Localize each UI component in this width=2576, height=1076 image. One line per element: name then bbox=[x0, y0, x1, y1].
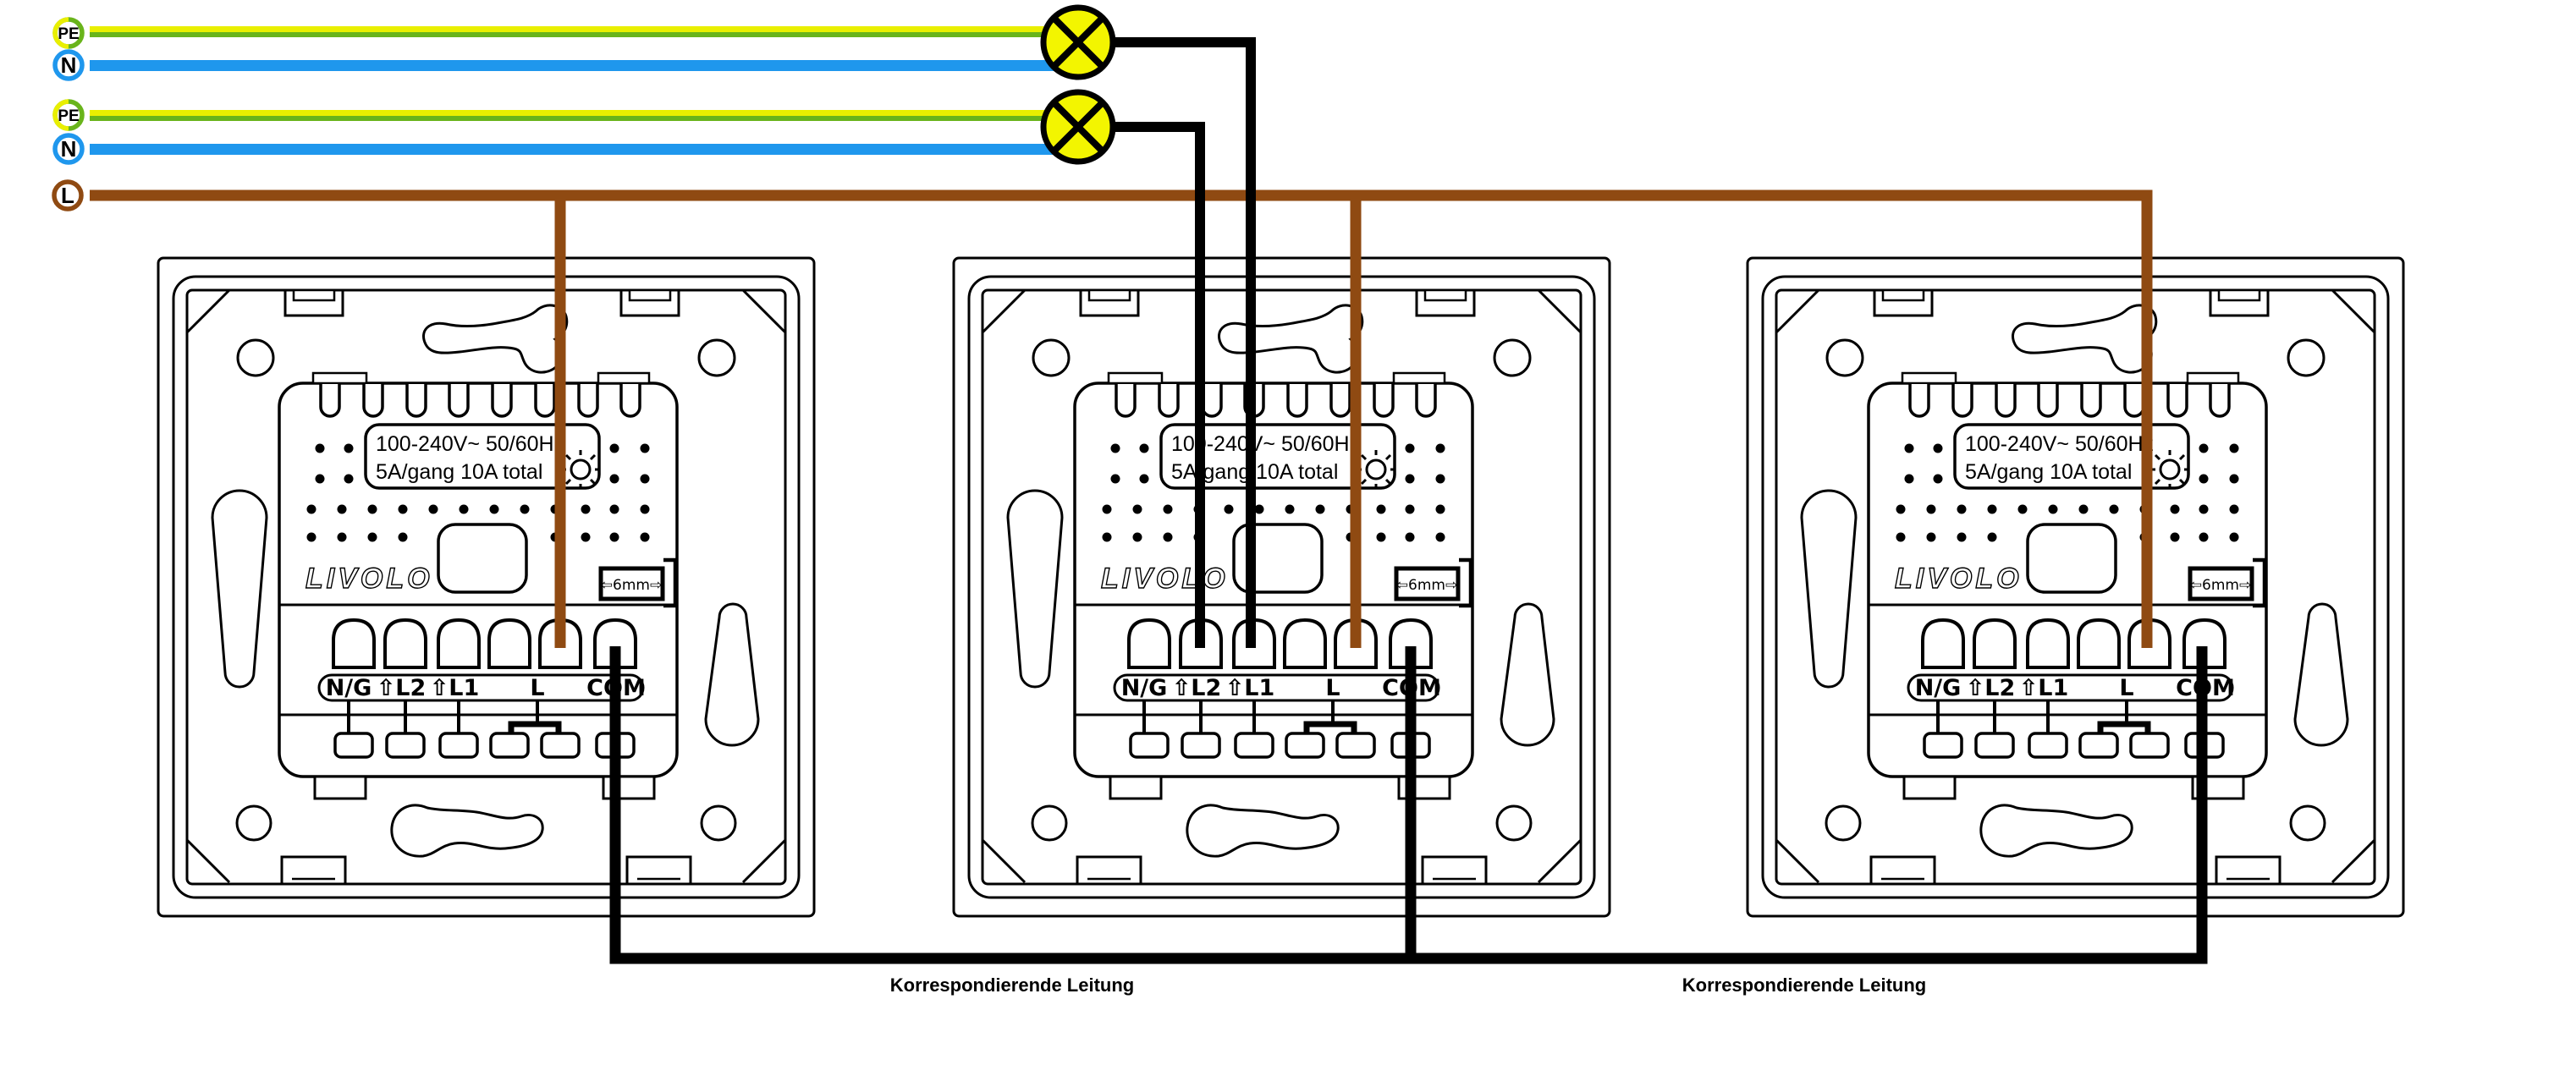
lamp-icon-1 bbox=[1043, 8, 1113, 77]
link2-annotation: Korrespondierende Leitung bbox=[1682, 974, 1926, 996]
supply-badge-n-2-label: N bbox=[61, 136, 77, 162]
supply-badge-pe-2-label: PE bbox=[58, 107, 79, 125]
terminal-label-l2: ⇧L2 bbox=[377, 675, 427, 701]
wiring-diagram: 100-240V~ 50/60Hz 5A/gang 10A total bbox=[0, 0, 2576, 1076]
supply-badge-l-label: L bbox=[61, 183, 74, 208]
switch-unit-1: 100-240V~ 50/60Hz 5A/gang 10A total bbox=[158, 258, 814, 916]
rating-line2: 5A/gang 10A total bbox=[376, 460, 542, 484]
strip-gauge-label: ⇦6mm⇨ bbox=[601, 577, 662, 594]
neutral-wire-2 bbox=[90, 144, 1054, 155]
strip-gauge: ⇦6mm⇨ bbox=[601, 560, 675, 606]
lamp-icon-2 bbox=[1043, 92, 1113, 162]
supply-badge-pe-1-label: PE bbox=[58, 25, 79, 43]
terminal-label-l: L bbox=[530, 675, 544, 701]
pe-wire-2 bbox=[90, 110, 1054, 121]
brand-logo: LIVOLO bbox=[305, 563, 433, 595]
module-center-window bbox=[438, 524, 526, 592]
supply-badge-n-2: N bbox=[55, 135, 82, 162]
link1-annotation: Korrespondierende Leitung bbox=[890, 974, 1134, 996]
rating-line1: 100-240V~ 50/60Hz bbox=[376, 432, 564, 456]
neutral-wire-1 bbox=[90, 60, 1054, 71]
terminal-label-ng: N/G bbox=[326, 675, 372, 701]
supply-badge-n-1: N bbox=[55, 52, 82, 79]
switch-unit-3 bbox=[1748, 258, 2403, 916]
supply-badge-pe-2: PE bbox=[55, 102, 82, 129]
switch-unit-2 bbox=[954, 258, 1610, 916]
pe-wire-1 bbox=[90, 26, 1054, 37]
wiring-diagram-canvas: 100-240V~ 50/60Hz 5A/gang 10A total bbox=[0, 0, 2576, 1076]
supply-badge-pe-1: PE bbox=[55, 19, 82, 47]
supply-badge-n-1-label: N bbox=[61, 52, 77, 78]
supply-badge-l: L bbox=[54, 182, 81, 209]
terminal-label-l1: ⇧L1 bbox=[430, 675, 480, 701]
